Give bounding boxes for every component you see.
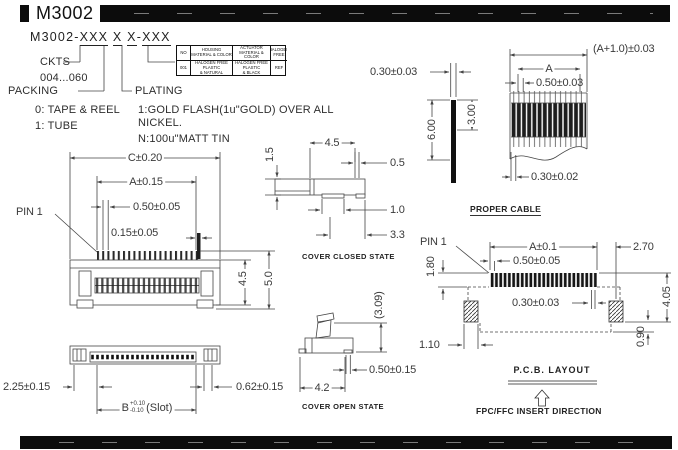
redacted-footer-bar [20,436,672,449]
plating-label: PLATING [135,85,183,97]
cover-open-linework [299,313,387,392]
cable-dim-pitch: 0.50±0.03 [536,77,583,89]
insert-direction-arrow-icon [535,390,549,406]
pcb-dim-a: A±0.1 [527,241,559,253]
slot-tol-plus: +0.10 [130,401,145,408]
pcb-dim-anchor-offset: 0.90 [635,326,647,347]
pcb-dim-end: 2.70 [633,241,654,253]
cable-dim-a: A [543,63,554,75]
slot-letter: B [122,402,129,414]
bottom-dim-right: 0.62±0.15 [236,381,283,393]
pcb-dim-pitch: 0.50±0.05 [513,255,560,267]
table-housing-header: HOUSING MATERIAL & COLOR [191,46,233,61]
front-pin1-label: PIN 1 [16,206,43,218]
closed-dim-span: 3.3 [390,229,405,241]
pcb-layout-caption: P.C.B. LAYOUT [513,366,590,376]
table-halogen-header: HALOGEN FREE [271,46,287,61]
cable-dim-conductor: 0.30±0.02 [531,171,578,183]
closed-dim-tail: 0.5 [390,157,405,169]
pcb-dim-pad-width: 0.30±0.03 [512,297,559,309]
plating-option-1: 1:GOLD FLASH(1u"GOLD) OVER ALL [138,104,334,116]
title-block-mark [20,5,29,22]
packing-label: PACKING [8,85,58,97]
part-prefix: M3002- [30,30,80,44]
closed-dim-foot: 1.0 [390,204,405,216]
pcb-dim-anchor-width: 1.10 [419,339,440,351]
bottom-dim-slot: B +0.10 -0.10 (Slot) [120,401,175,415]
front-dim-a: A±0.15 [127,176,165,188]
closed-dim-height: 1.5 [264,147,276,162]
plating-option-1b: NICKEL. [138,117,182,129]
ckts-range: 004...060 [40,72,88,84]
drawing-linework [0,0,678,450]
insert-direction-label: FPC/FFC INSERT DIRECTION [476,407,602,416]
table-actuator-value: HALOGEN FREE PLASTIC & BLACK [233,61,271,76]
front-dim-body-height: 4.5 [237,269,249,288]
proper-cable-caption: PROPER CABLE [470,205,541,216]
packing-option-0: 0: TAPE & REEL [35,104,120,116]
slot-tol-minus: -0.10 [130,408,145,415]
cover-closed-caption: COVER CLOSED STATE [302,253,395,261]
front-dim-pin-width: 0.15±0.05 [111,227,158,239]
table-col0-value: 001 [177,61,191,76]
table-halogen-value: REF [271,61,287,76]
pcb-pin1-label: PIN 1 [420,236,447,248]
table-col0-header: NO [177,46,191,61]
table-actuator-header: ACTUATOR MATERIAL & COLOR [233,46,271,61]
cable-dim-length: 6.00 [426,117,438,142]
pcb-dim-pad-length: 1.80 [425,256,437,277]
materials-table: NO HOUSING MATERIAL & COLOR ACTUATOR MAT… [176,45,286,76]
slot-tolerances: +0.10 -0.10 [130,401,145,415]
redacted-header-bar [100,5,670,22]
part-number-code: M3002-XXX X X-XXX [30,30,171,44]
open-dim-foot: 0.50±0.15 [369,364,416,376]
page-title: M3002 [36,3,94,24]
suffix-field: XXX [142,30,171,46]
cable-dim-exposed: 3.00 [466,102,478,127]
pcb-dim-height: 4.05 [661,284,673,309]
closed-dim-depth: 4.5 [323,137,342,149]
front-dim-pitch: 0.50±0.05 [133,201,180,213]
table-housing-value: HALOGEN FREE PLASTIC & NATURAL [191,61,233,76]
datasheet-page: M3002 M3002-XXX X X-XXX CKTS 004...060 P… [0,0,678,450]
front-dim-total-height: 5.0 [263,269,275,288]
cable-view-linework [427,49,587,183]
ckts-label: CKTS [40,56,70,68]
bottom-dim-left: 2.25±0.15 [3,381,50,393]
packing-option-1: 1: TUBE [35,120,78,132]
slot-suffix: (Slot) [146,402,172,414]
cable-dim-thickness: 0.30±0.03 [370,66,417,78]
ckts-field: XXX [80,30,109,46]
plating-option-n: N:100u"MATT TIN [138,133,230,145]
plating-field: X [127,30,137,46]
cable-dim-overall: (A+1.0)±0.03 [593,43,654,55]
open-dim-width: 4.2 [313,382,332,394]
cover-open-caption: COVER OPEN STATE [302,403,384,411]
cover-closed-linework [265,143,387,239]
open-dim-height: (3.09) [373,289,385,321]
front-dim-c: C±0.20 [126,152,164,164]
